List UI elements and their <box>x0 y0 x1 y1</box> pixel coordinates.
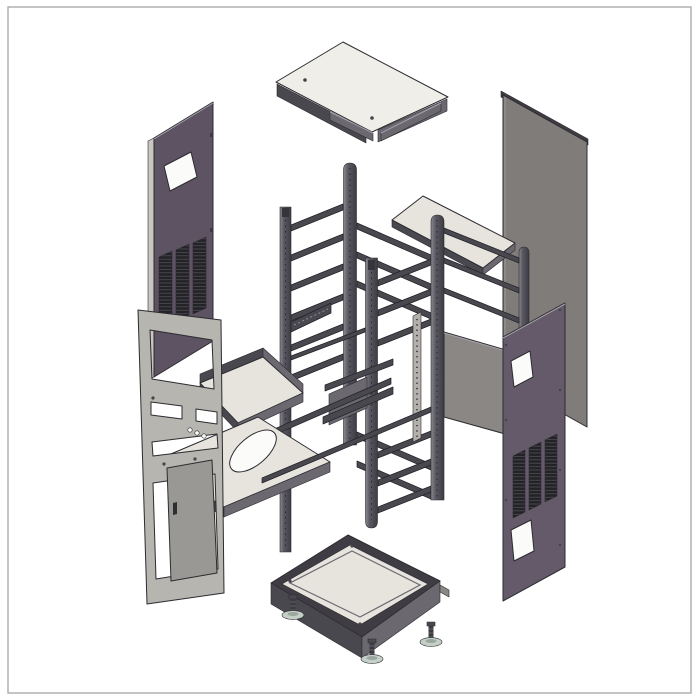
rack-post-right-rear <box>431 215 444 500</box>
top-cover-screw <box>303 78 307 82</box>
base-corner-tab <box>440 585 449 597</box>
cage-nut-strip <box>413 312 421 442</box>
access-door <box>167 460 217 581</box>
frame-hole <box>195 431 199 435</box>
side-panel-right-front <box>503 303 565 601</box>
top-cover-screw <box>370 116 374 120</box>
leveling-foot <box>420 622 442 646</box>
door-handle-slot <box>173 502 177 515</box>
diagram-canvas <box>0 0 700 700</box>
exploded-view-drawing <box>0 0 700 700</box>
frame-hole <box>188 428 192 432</box>
frame-hole <box>202 434 206 438</box>
